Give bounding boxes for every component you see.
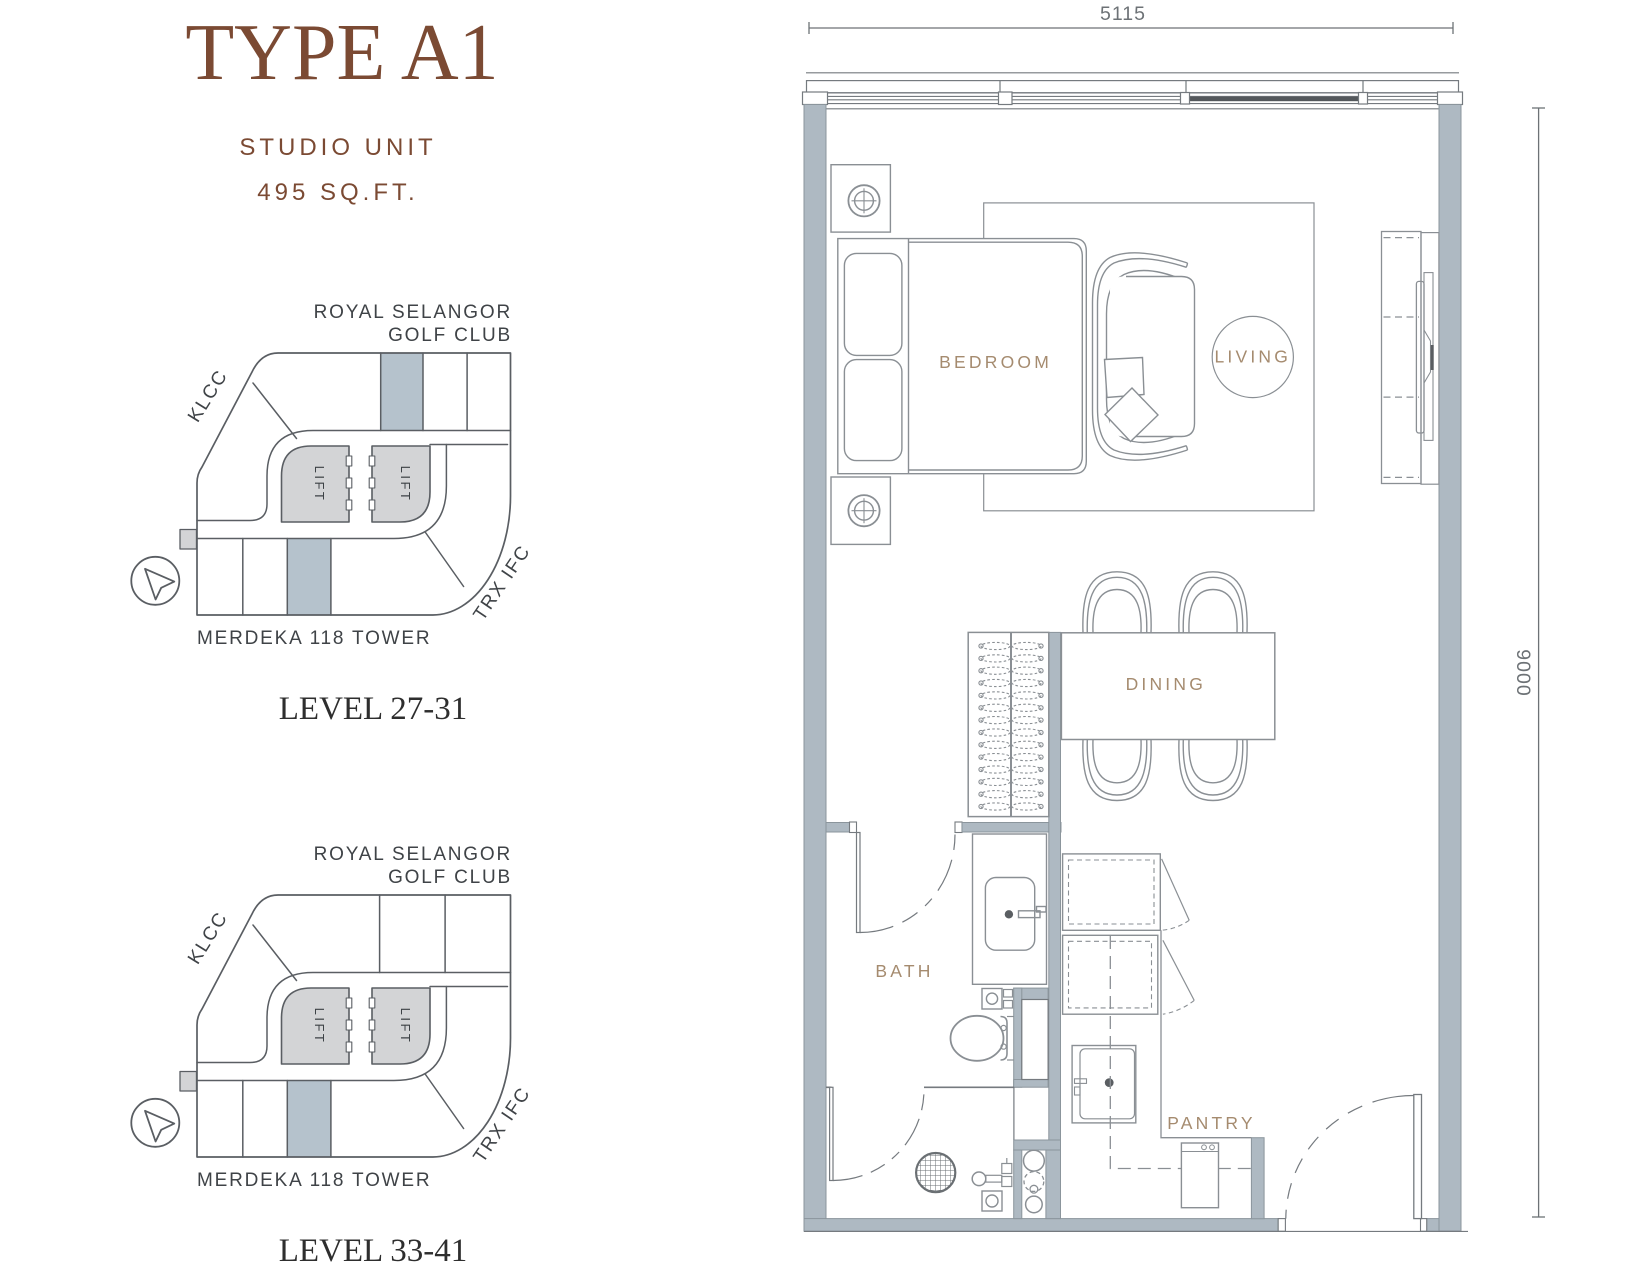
svg-text:LEVEL 33-41: LEVEL 33-41	[279, 1233, 467, 1269]
svg-text:BATH: BATH	[875, 961, 933, 981]
svg-text:STUDIO UNIT: STUDIO UNIT	[239, 134, 436, 161]
svg-text:GOLF CLUB: GOLF CLUB	[388, 325, 512, 346]
svg-text:DINING: DINING	[1126, 674, 1206, 694]
svg-text:LIFT: LIFT	[398, 466, 413, 503]
svg-text:LIFT: LIFT	[398, 1008, 413, 1045]
svg-text:LIFT: LIFT	[312, 1008, 327, 1045]
svg-text:ROYAL SELANGOR: ROYAL SELANGOR	[314, 844, 512, 865]
svg-text:5115: 5115	[1100, 3, 1146, 25]
svg-text:ROYAL SELANGOR: ROYAL SELANGOR	[314, 302, 512, 323]
svg-text:LIVING: LIVING	[1215, 347, 1292, 367]
svg-text:9000: 9000	[1512, 649, 1534, 696]
svg-text:PANTRY: PANTRY	[1167, 1113, 1256, 1133]
svg-text:TYPE A1: TYPE A1	[185, 9, 498, 97]
svg-text:MERDEKA 118 TOWER: MERDEKA 118 TOWER	[197, 628, 431, 649]
svg-text:LEVEL 27-31: LEVEL 27-31	[279, 691, 467, 727]
svg-text:MERDEKA 118 TOWER: MERDEKA 118 TOWER	[197, 1170, 431, 1191]
svg-text:BEDROOM: BEDROOM	[939, 352, 1052, 372]
svg-text:495 SQ.FT.: 495 SQ.FT.	[257, 179, 418, 206]
svg-text:LIFT: LIFT	[312, 466, 327, 503]
svg-text:GOLF CLUB: GOLF CLUB	[388, 867, 512, 888]
